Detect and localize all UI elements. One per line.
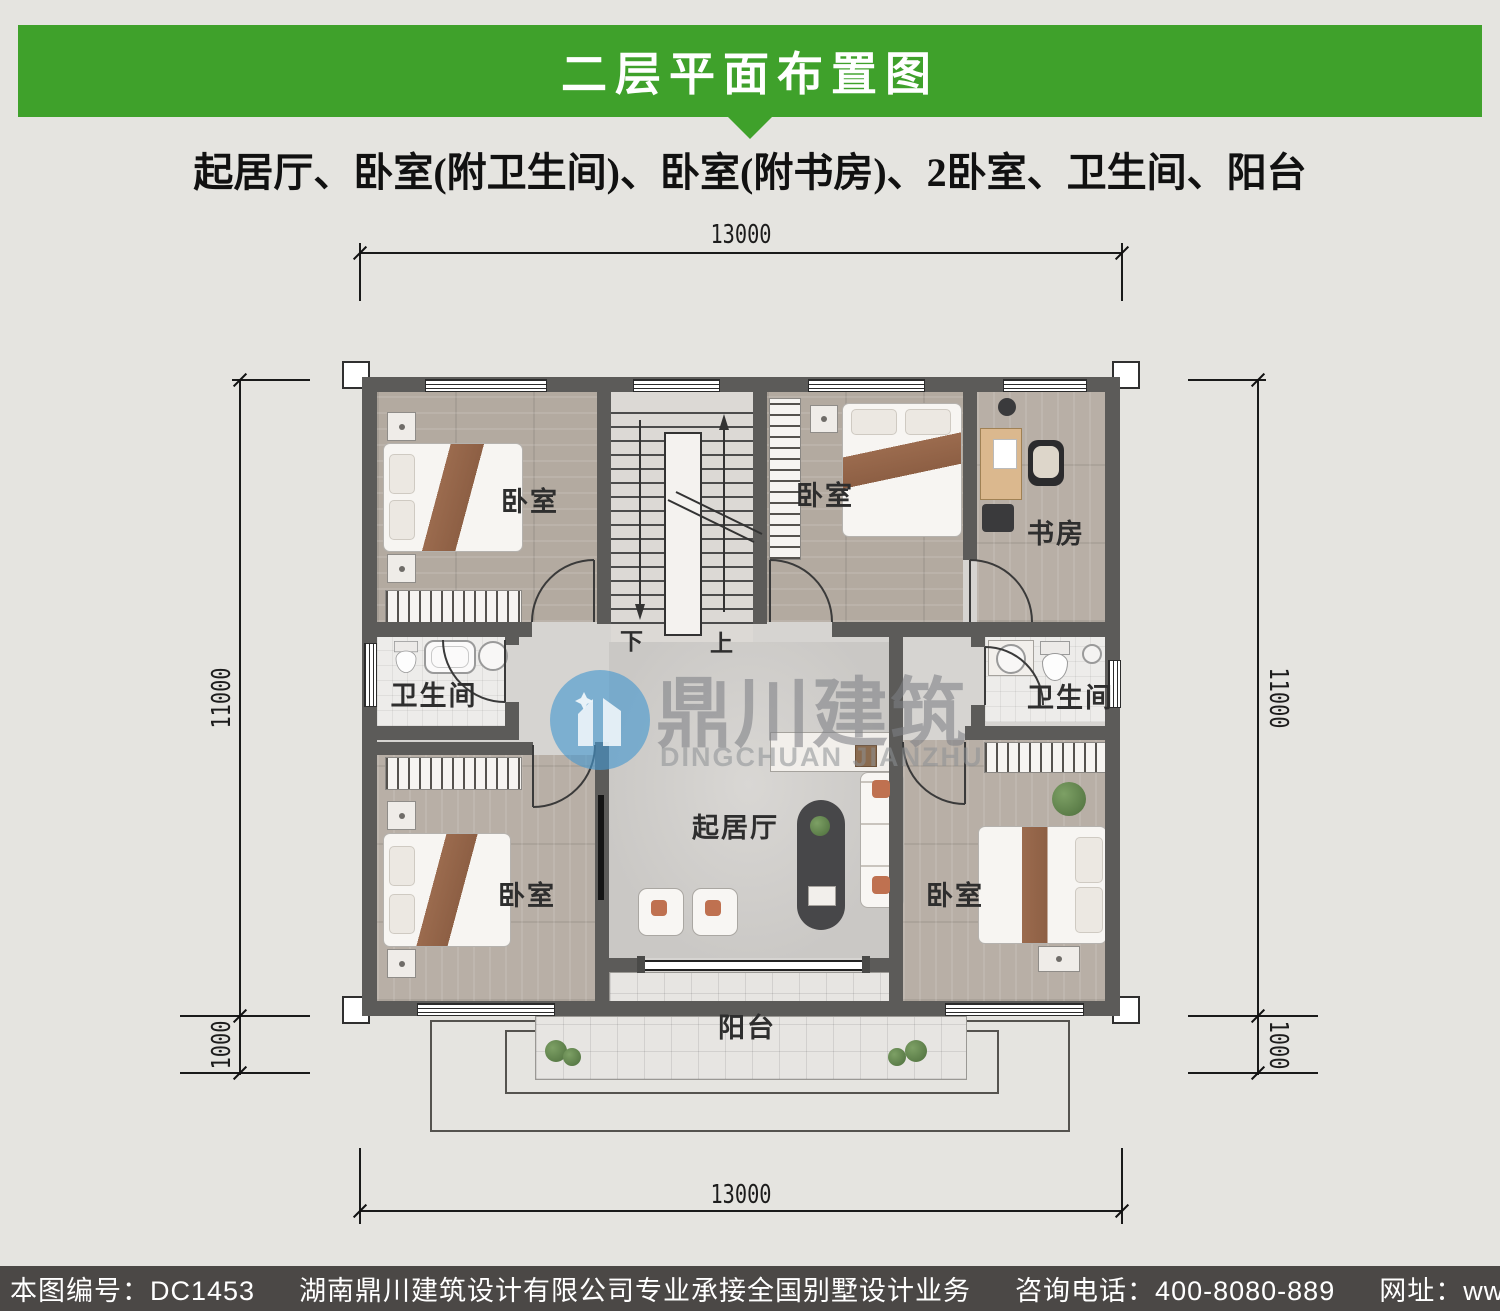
footer-company: 湖南鼎川建筑设计有限公司专业承接全国别墅设计业务	[299, 1269, 971, 1308]
nightstand	[387, 949, 416, 978]
dim-left-balcony-value: 1000	[207, 998, 237, 1092]
dim-bottom-value: 13000	[694, 1180, 788, 1210]
bath-left-sink	[478, 641, 508, 671]
wall-bathleft-bottom	[377, 726, 519, 740]
dim-line-bottom	[360, 1210, 1122, 1212]
wall-bathleft-right-stub1	[505, 637, 519, 645]
nightstand	[387, 554, 416, 583]
bed-pillow	[389, 500, 415, 540]
study-desk	[980, 428, 1022, 500]
toilet-bowl	[396, 651, 417, 673]
wall-stair-tm	[753, 392, 767, 624]
wall-bathright-left-stub2	[971, 705, 985, 726]
wall-tm-bottom	[832, 622, 963, 637]
room-label-balcony: 阳台	[687, 1006, 807, 1045]
tv-panel	[598, 795, 604, 900]
sliding-door-jamb-left	[637, 956, 645, 973]
footer-phone: 咨询电话：400-8080-889	[1015, 1269, 1335, 1308]
bed-pillow	[1075, 887, 1103, 933]
nightstand	[1038, 946, 1080, 972]
nightstand	[387, 801, 416, 830]
window-top-3	[808, 379, 925, 392]
desk-paper	[993, 439, 1017, 469]
room-label-bedroom-bottom-right: 卧室	[890, 874, 1020, 913]
wardrobe-bedroom-bottom-left	[385, 757, 522, 790]
stairs-stringer	[664, 432, 702, 636]
room-label-bedroom-top-left: 卧室	[465, 480, 595, 519]
balcony-sliding-door	[643, 960, 866, 971]
room-label-bedroom-top-mid: 卧室	[770, 474, 880, 513]
bed-top-mid	[842, 403, 962, 537]
balcony-plant-right2-icon	[888, 1048, 906, 1066]
room-label-bath-left: 卫生间	[374, 674, 494, 713]
window-bottom-right	[945, 1003, 1084, 1016]
room-label-living: 起居厅	[658, 806, 813, 845]
wall-tl-stair	[597, 392, 611, 624]
bed-pillow	[389, 894, 415, 934]
dim-ext-right-mid	[1188, 1015, 1318, 1017]
bed-pillow	[1075, 837, 1103, 883]
wall-bathright-left-stub1	[971, 637, 985, 647]
footer-bar: 本图编号：DC1453 湖南鼎川建筑设计有限公司专业承接全国别墅设计业务 咨询电…	[0, 1266, 1500, 1311]
bed-pillow	[389, 454, 415, 494]
window-top-2	[633, 379, 720, 392]
wall-bathleft-right-stub2	[505, 702, 519, 726]
dim-ext-right-bot	[1188, 1072, 1318, 1074]
wardrobe-bedroom-bottom-right	[984, 742, 1107, 773]
room-label-bath-right: 卫生间	[1008, 676, 1133, 715]
sofa-pillow	[872, 876, 890, 894]
study-lamp-icon	[998, 398, 1016, 416]
balcony-plant-right-icon	[905, 1040, 927, 1062]
bed-pillow	[905, 409, 951, 435]
dim-ext-left-bot	[180, 1072, 310, 1074]
nightstand	[810, 405, 838, 433]
dim-ext-left-mid	[180, 1015, 310, 1017]
dim-top-value: 13000	[694, 220, 788, 250]
window-top-4	[1003, 379, 1087, 392]
sliding-door-jamb-right	[862, 956, 870, 973]
footer-plan-number: 本图编号：DC1453	[10, 1269, 255, 1308]
table-tray	[808, 886, 836, 906]
bath-right-toilet	[1040, 641, 1068, 681]
room-label-bedroom-bottom-left: 卧室	[462, 874, 592, 913]
window-bottom-left	[417, 1003, 555, 1016]
sofa-pillow	[872, 780, 890, 798]
wall-tm-study	[963, 392, 977, 560]
stairs-down-label: 下	[610, 622, 655, 656]
bedroom-plant-icon	[1052, 782, 1086, 816]
stairs-up-label: 上	[700, 624, 745, 658]
table-plant-icon	[810, 816, 830, 836]
dim-line-left	[239, 380, 241, 1075]
bathtub	[424, 640, 476, 674]
living-cabinet	[855, 745, 877, 767]
dim-ext-left-top	[232, 379, 310, 381]
room-label-study: 书房	[996, 512, 1116, 551]
bed-pillow	[389, 846, 415, 886]
wall-living-br	[889, 637, 903, 1001]
wall-bathright-top	[963, 622, 1105, 637]
balcony-plant-left2-icon	[563, 1048, 581, 1066]
footer-website: 网址：www.bstzcs.com	[1379, 1269, 1500, 1308]
dim-line-right	[1257, 380, 1259, 1075]
wall-living-bottom-left	[595, 958, 643, 972]
bed-pillow	[851, 409, 897, 435]
nightstand	[387, 412, 416, 441]
dim-left-main-value: 11000	[207, 651, 237, 745]
armchair-pillow	[651, 900, 667, 916]
wardrobe-bedroom-top-left	[385, 590, 522, 623]
dim-line-top	[360, 252, 1122, 254]
page: 二层平面布置图 起居厅、卧室(附卫生间)、卧室(附书房)、2卧室、卫生间、阳台	[0, 0, 1500, 1311]
dim-right-main-value: 11000	[1263, 651, 1293, 745]
window-top-1	[425, 379, 547, 392]
wall-living-bottom-right	[866, 958, 903, 972]
bath-right-sink	[996, 644, 1026, 674]
wall-br-top	[965, 726, 1105, 740]
wall-tl-bottom	[377, 622, 532, 637]
armchair-pillow	[705, 900, 721, 916]
study-chair	[1028, 440, 1064, 486]
dim-right-balcony-value: 1000	[1263, 998, 1293, 1092]
floor-plan: 卧室 卧室 书房 卫生间 卫生间 卧室 起居厅 卧室 阳台 下 上 13000 …	[0, 0, 1500, 1311]
bath-left-toilet	[394, 641, 416, 673]
shower-head-icon	[1082, 644, 1102, 664]
wall-bl-top	[377, 742, 533, 755]
